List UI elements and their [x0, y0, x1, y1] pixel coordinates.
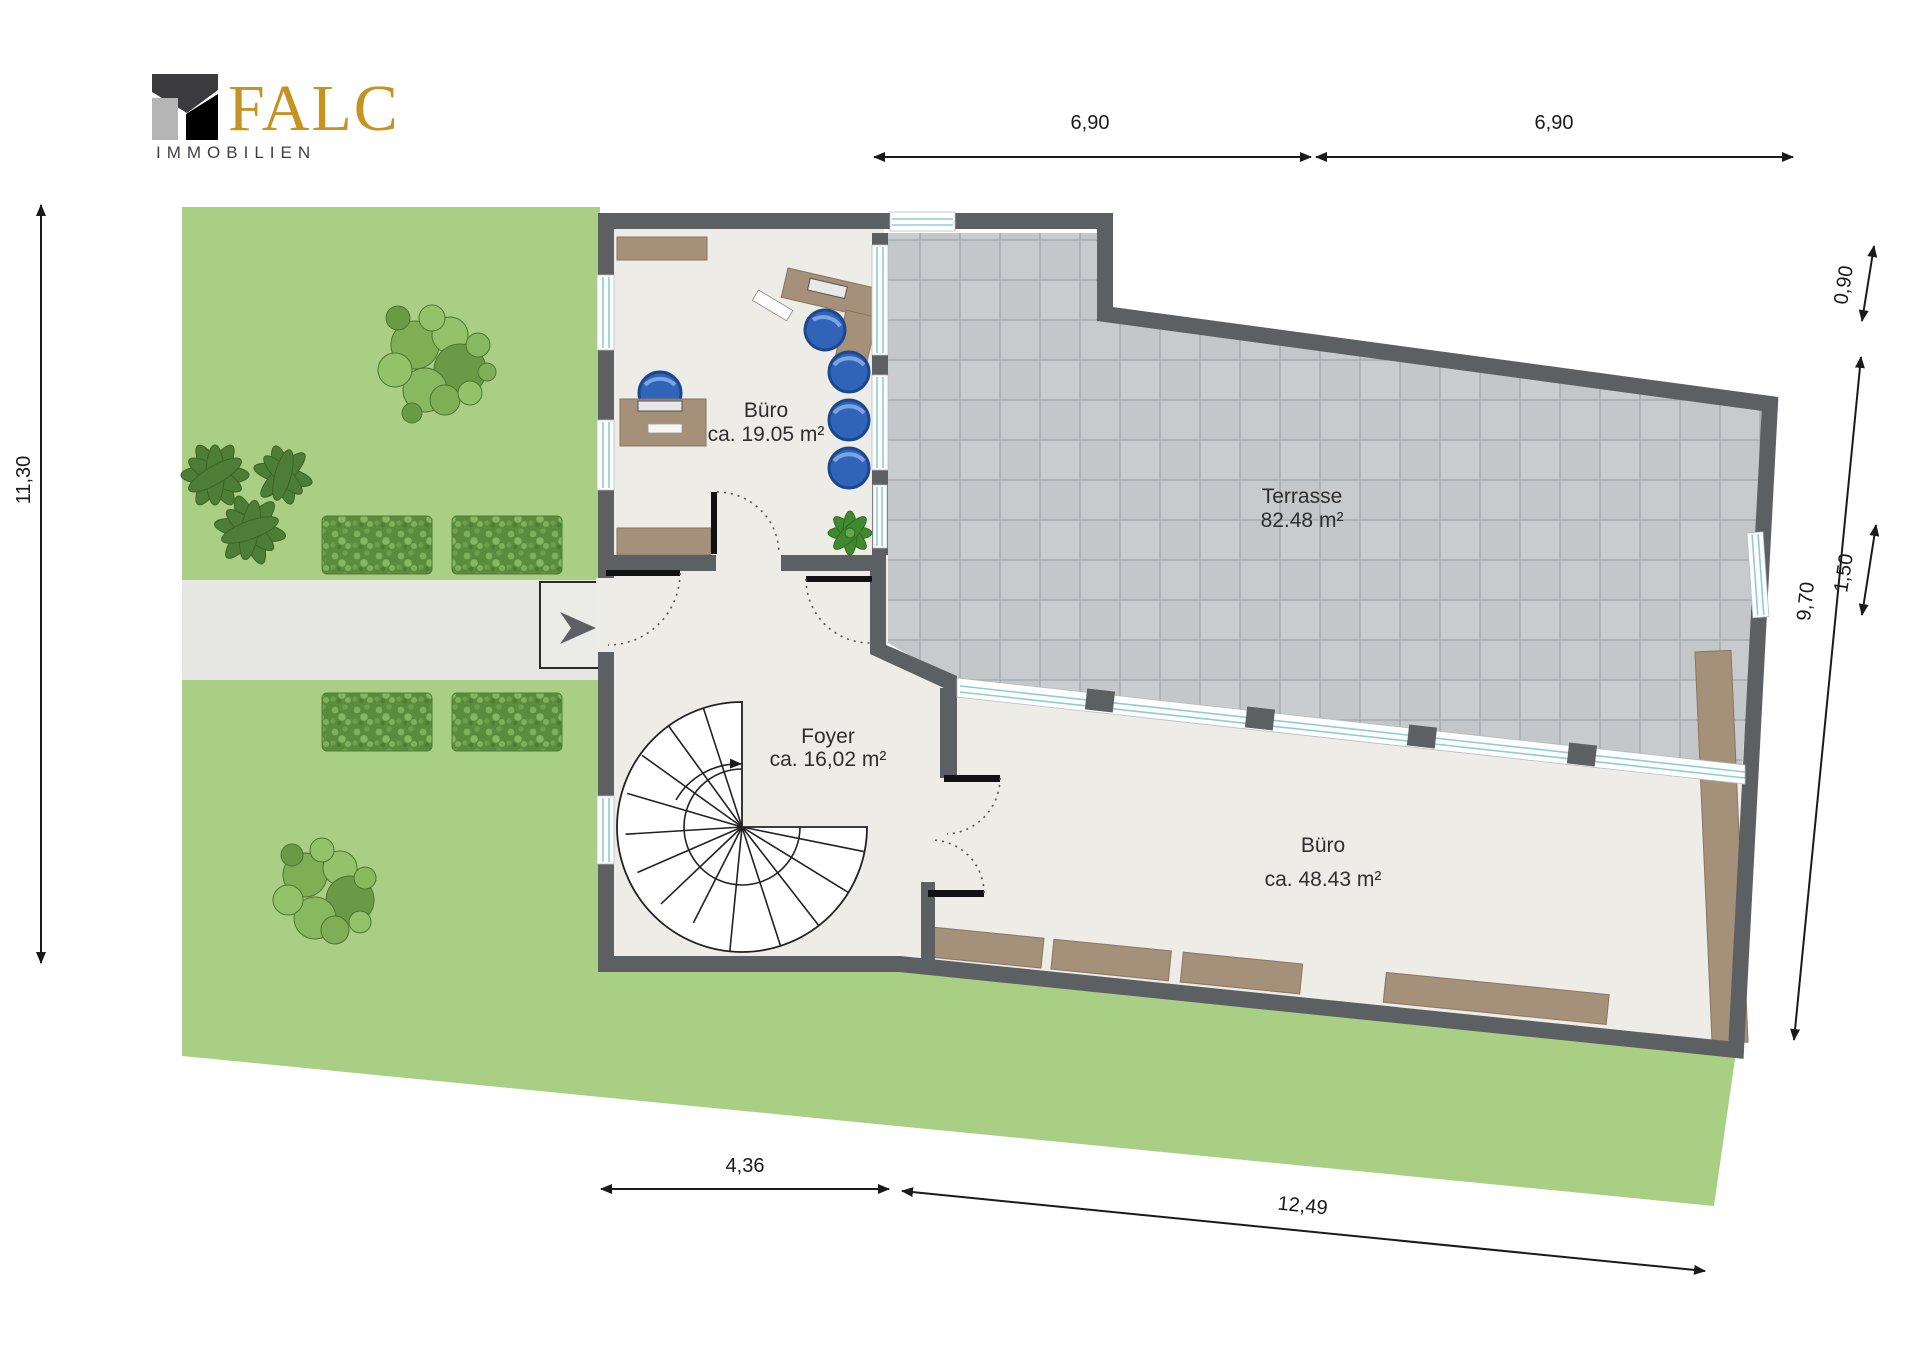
dim-right-inner: 1,50	[1830, 552, 1858, 594]
logo-brand-text: FALC	[228, 72, 400, 145]
logo-mark-gray	[152, 98, 178, 140]
window	[597, 420, 614, 490]
foyer-door	[806, 576, 872, 582]
dim-left: 11,30	[13, 456, 35, 505]
terrace-area: 82.48 m²	[1261, 509, 1344, 532]
office-top-area: ca. 19.05 m²	[708, 423, 825, 446]
chair	[829, 448, 869, 488]
office-top-name: Büro	[744, 399, 788, 422]
window	[872, 375, 888, 470]
foyer-name: Foyer	[801, 725, 855, 748]
sideboard-bottom	[617, 528, 711, 555]
floor-plan-canvas: Büro ca. 19.05 m² Terrasse 82.48 m² Foye…	[0, 0, 1920, 1357]
window	[873, 485, 887, 548]
terrace-name: Terrasse	[1262, 485, 1343, 508]
dim-top-right: 6,90	[1535, 112, 1574, 134]
window	[597, 796, 614, 864]
chair	[829, 352, 869, 392]
office-top-door	[711, 492, 717, 554]
dim-right-upper: 0,90	[1830, 264, 1858, 306]
plant	[828, 511, 872, 555]
office-main-name: Büro	[1301, 834, 1345, 857]
dim-top-left: 6,90	[1071, 112, 1110, 134]
floor-plan-page: Büro ca. 19.05 m² Terrasse 82.48 m² Foye…	[0, 0, 1920, 1357]
falc-logo: FALC IMMOBILIEN	[152, 72, 400, 162]
sideboard-top	[617, 237, 707, 260]
foyer-area: ca. 16,02 m²	[770, 748, 887, 771]
window	[872, 245, 888, 355]
entrance-door	[606, 570, 680, 576]
office-main-area: ca. 48.43 m²	[1265, 868, 1382, 891]
window	[597, 275, 614, 350]
office-main-door-upper	[944, 775, 1000, 782]
dim-bottom-right: 12,49	[1277, 1193, 1329, 1220]
logo-subtitle-text: IMMOBILIEN	[156, 143, 316, 162]
chair-row	[829, 352, 869, 488]
window	[890, 212, 955, 231]
office-main-door-lower	[928, 890, 984, 897]
chair	[829, 400, 869, 440]
dim-bottom-left: 4,36	[726, 1155, 765, 1177]
dim-right-long: 9,70	[1793, 581, 1819, 622]
